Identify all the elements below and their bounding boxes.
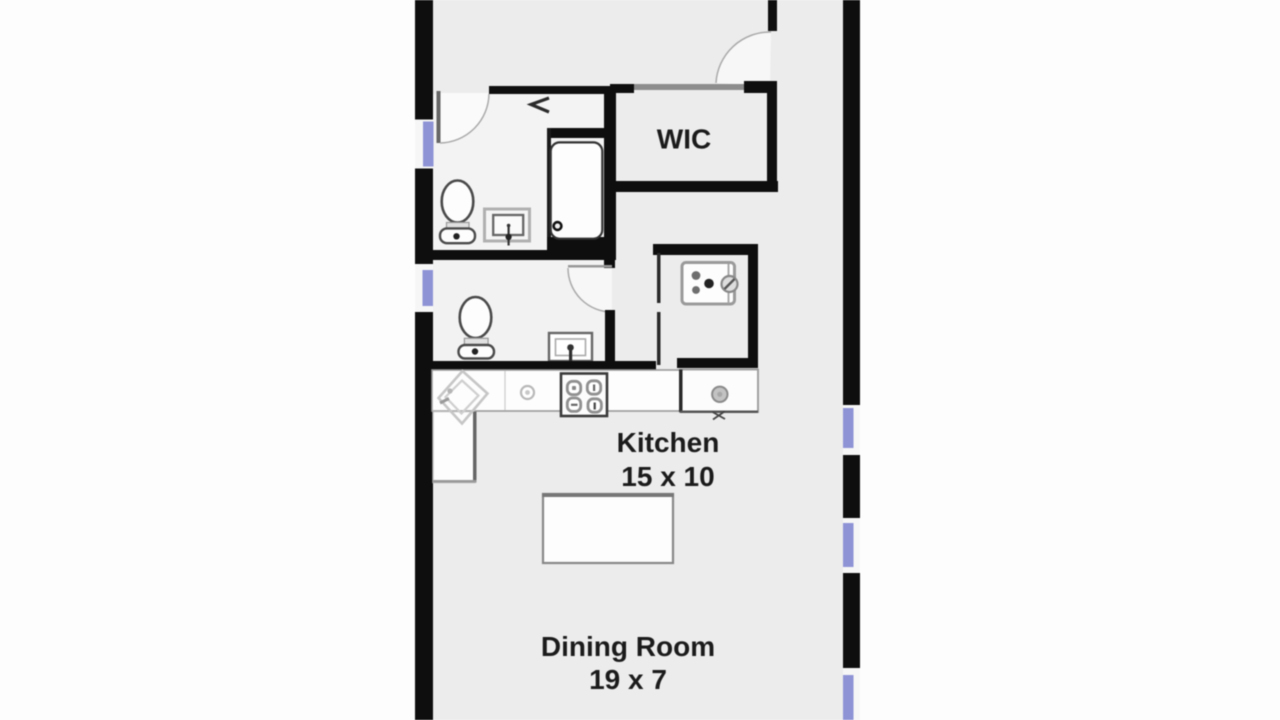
svg-text:Kitchen: Kitchen <box>617 427 720 458</box>
svg-text:19 x 7: 19 x 7 <box>589 664 667 695</box>
svg-text:Dining Room: Dining Room <box>541 631 715 662</box>
svg-text:15 x 10: 15 x 10 <box>621 461 714 492</box>
svg-text:WIC: WIC <box>657 124 711 155</box>
